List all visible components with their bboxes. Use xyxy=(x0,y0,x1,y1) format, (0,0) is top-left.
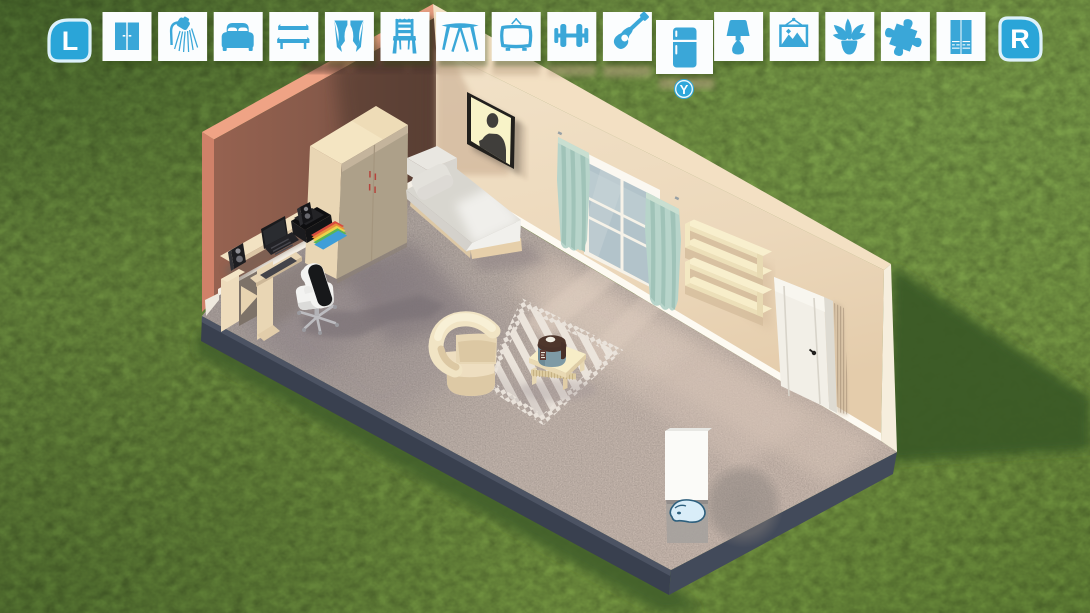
svg-text:Y: Y xyxy=(680,82,689,97)
svg-text:R: R xyxy=(1010,24,1030,54)
svg-text:L: L xyxy=(62,26,79,56)
